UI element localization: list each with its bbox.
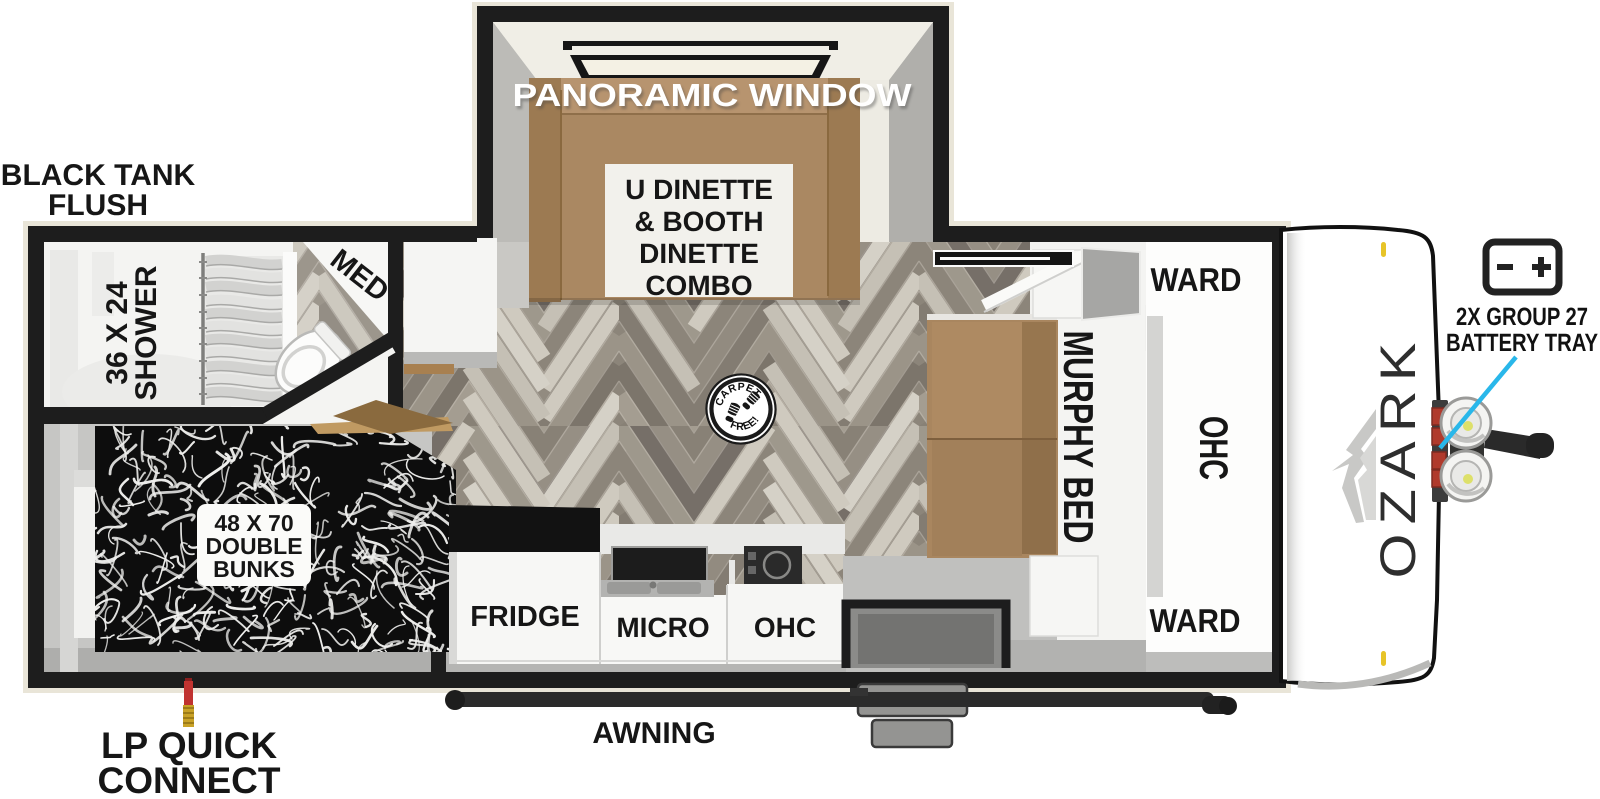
svg-text:FRIDGE: FRIDGE bbox=[470, 601, 580, 633]
svg-text:BATTERY TRAY: BATTERY TRAY bbox=[1446, 329, 1598, 357]
svg-text:WARD: WARD bbox=[1150, 602, 1241, 639]
svg-text:MICRO: MICRO bbox=[616, 612, 709, 643]
svg-text:OZARK: OZARK bbox=[1370, 334, 1426, 579]
svg-text:OHC: OHC bbox=[1191, 416, 1235, 480]
svg-text:COMBO: COMBO bbox=[645, 270, 752, 301]
svg-text:U DINETTE: U DINETTE bbox=[625, 174, 773, 205]
svg-text:BLACK TANK: BLACK TANK bbox=[1, 159, 196, 192]
svg-text:PANORAMIC WINDOW: PANORAMIC WINDOW bbox=[513, 77, 913, 113]
svg-text:FLUSH: FLUSH bbox=[48, 189, 148, 222]
svg-text:CONNECT: CONNECT bbox=[98, 760, 281, 794]
svg-text:2X GROUP 27: 2X GROUP 27 bbox=[1456, 303, 1588, 331]
svg-text:MURPHY BED: MURPHY BED bbox=[1055, 331, 1102, 544]
svg-text:& BOOTH: & BOOTH bbox=[634, 206, 763, 237]
svg-text:AWNING: AWNING bbox=[592, 717, 715, 750]
svg-text:OHC: OHC bbox=[754, 612, 816, 643]
svg-text:WARD: WARD bbox=[1151, 261, 1242, 298]
svg-text:DINETTE: DINETTE bbox=[639, 238, 759, 269]
svg-text:BUNKS: BUNKS bbox=[213, 556, 295, 582]
svg-text:SHOWER: SHOWER bbox=[130, 265, 163, 400]
